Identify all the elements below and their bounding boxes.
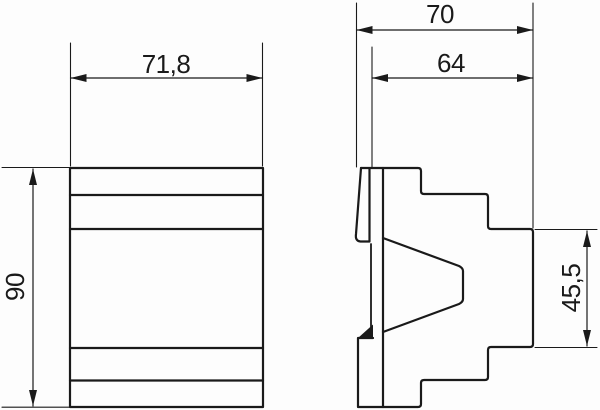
front-view-body-outline [70,168,263,407]
din-clamp-upper-jaw [356,168,370,242]
front-view [70,168,263,407]
dimension-side-rear-height: 45,5 [535,230,597,348]
dim-label-side-depth-total: 70 [426,0,454,29]
din-rail-notch [383,238,463,332]
dim-label-front-height: 90 [0,273,30,301]
dimension-front-width: 71,8 [71,43,263,166]
side-view [356,168,533,407]
dim-label-front-width: 71,8 [142,49,191,79]
dim-label-side-rear-height: 45,5 [556,264,586,313]
dimension-front-height: 90 [0,168,69,408]
side-view-body-outline [358,168,533,407]
dimension-side-depth-body: 64 [372,47,533,167]
drawing-canvas: 71,8 90 70 [0,0,600,410]
technical-drawing: 71,8 90 70 [0,0,600,410]
dim-label-side-depth-body: 64 [437,48,465,78]
